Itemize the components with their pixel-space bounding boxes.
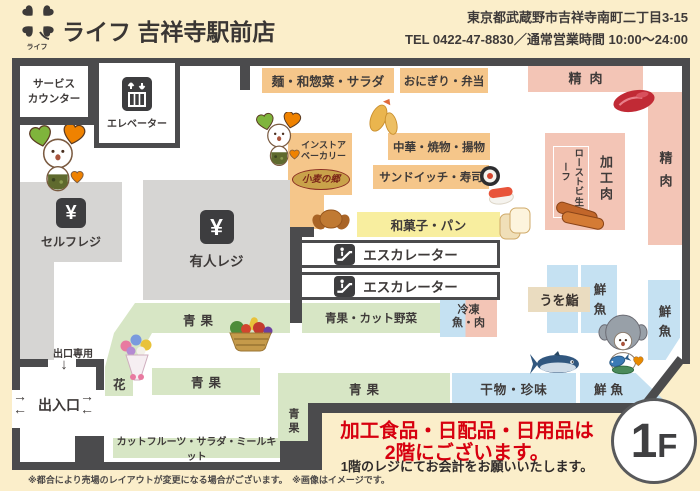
life-clover-logo: ライフ	[16, 4, 60, 54]
section-wagashi-bread: 和菓子・パン	[357, 212, 500, 237]
manned-register-label: 有人レジ	[190, 250, 244, 270]
frozen-label: 魚・肉	[452, 317, 485, 330]
section-produce-bottom: 青果	[278, 373, 450, 403]
wall	[240, 58, 250, 90]
service-counter-label: カウンター	[28, 92, 81, 106]
escalator-label: エスカレーター	[363, 276, 458, 296]
section-produce-mid: 青果	[152, 368, 260, 395]
floor-badge: 1F	[611, 398, 697, 484]
wall	[12, 117, 96, 125]
section-frozen-fish-meat: 冷凍 魚・肉	[440, 297, 497, 337]
elevator-label: エレベーター	[107, 115, 167, 130]
produce-label: 青果	[183, 310, 218, 329]
tempura-image	[362, 98, 404, 140]
wall-pillar	[75, 436, 104, 470]
bakery-brand-logo: 小麦の郷	[292, 169, 350, 190]
manned-register-area: ¥ 有人レジ	[143, 180, 290, 300]
store-contact-block: 東京都武蔵野市吉祥寺南町二丁目3-15 TEL 0422-47-8830／通常営…	[405, 7, 688, 48]
section-noodle-deli-salad: 麺・和惣菜・サラダ	[262, 68, 394, 93]
elevator-icon	[122, 77, 152, 111]
wall	[12, 58, 20, 390]
vegetable-basket-image	[226, 316, 274, 354]
entrance-arrows-right: → ←	[80, 390, 94, 417]
logo-small-text: ライフ	[27, 43, 48, 51]
exit-only-label: 出口専用	[40, 345, 106, 360]
service-counter-label: サービス	[33, 77, 75, 91]
section-produce-strip: 青果	[278, 403, 308, 441]
roast-beef-label: ローストビーフ	[558, 147, 585, 196]
elevator-area: エレベーター	[94, 58, 180, 148]
arrow-left-icon: ←	[13, 403, 27, 416]
store-title: ライフ 吉祥寺駅前店	[62, 13, 275, 47]
wall	[20, 359, 48, 367]
section-cut-fruit-mealkit: カットフルーツ・サラダ・ミールキット	[113, 438, 280, 458]
arrow-down-icon: ↓	[56, 356, 72, 373]
wall	[682, 58, 690, 364]
section-onigiri-bento: おにぎり・弁当	[400, 68, 488, 93]
uwo-sushi-sign: うを鮨	[528, 287, 590, 312]
yen-icon: ¥	[200, 210, 234, 244]
store-floor-map: ライフ ライフ 吉祥寺駅前店 東京都武蔵野市吉祥寺南町二丁目3-15 TEL 0…	[0, 0, 700, 491]
escalator-label: エスカレーター	[363, 244, 458, 264]
layout-footnote: ※都合により売場のレイアウトが変更になる場合がございます。 ※画像はイメージです…	[28, 473, 390, 486]
wall	[96, 359, 104, 390]
bread-image	[497, 202, 535, 244]
yen-icon: ¥	[56, 198, 86, 228]
entrance-arrows-left: → ←	[13, 390, 27, 417]
section-sandwich-sushi: サンドイッチ・寿司	[373, 165, 489, 189]
escalator-2-area: エスカレーター	[292, 272, 500, 300]
escalator-icon	[334, 276, 355, 297]
wall	[290, 227, 314, 237]
beef-image	[610, 84, 658, 118]
store-tel-hours: TEL 0422-47-8830／通常営業時間 10:00～24:00	[405, 29, 688, 48]
floor-badge-number: 1	[631, 414, 658, 469]
wall	[308, 403, 322, 470]
arrow-left-icon: ←	[80, 403, 94, 416]
tuna-fish-image	[530, 350, 584, 378]
wall	[290, 227, 302, 323]
croissant-image	[310, 202, 352, 236]
sushi-image	[477, 164, 517, 206]
escalator-icon	[334, 244, 355, 265]
self-register-label: セルフレジ	[41, 233, 101, 250]
wall	[308, 403, 648, 413]
floor-badge-letter: F	[657, 427, 677, 465]
section-produce-cut: 青果・カット野菜	[302, 303, 440, 333]
flower-bouquet-image	[116, 334, 158, 384]
mascot-character	[22, 124, 96, 194]
wall	[12, 462, 322, 470]
mascot-fishmonger	[598, 310, 648, 376]
self-register-area: ¥ セルフレジ	[20, 182, 122, 262]
mascot-character	[252, 112, 308, 168]
store-address: 東京都武蔵野市吉祥寺南町二丁目3-15	[405, 7, 688, 26]
frozen-label: 冷凍	[458, 304, 480, 317]
sausage-image	[552, 193, 608, 235]
service-counter-area: サービス カウンター	[20, 66, 88, 117]
escalator-1-area: エスカレーター	[292, 240, 500, 268]
